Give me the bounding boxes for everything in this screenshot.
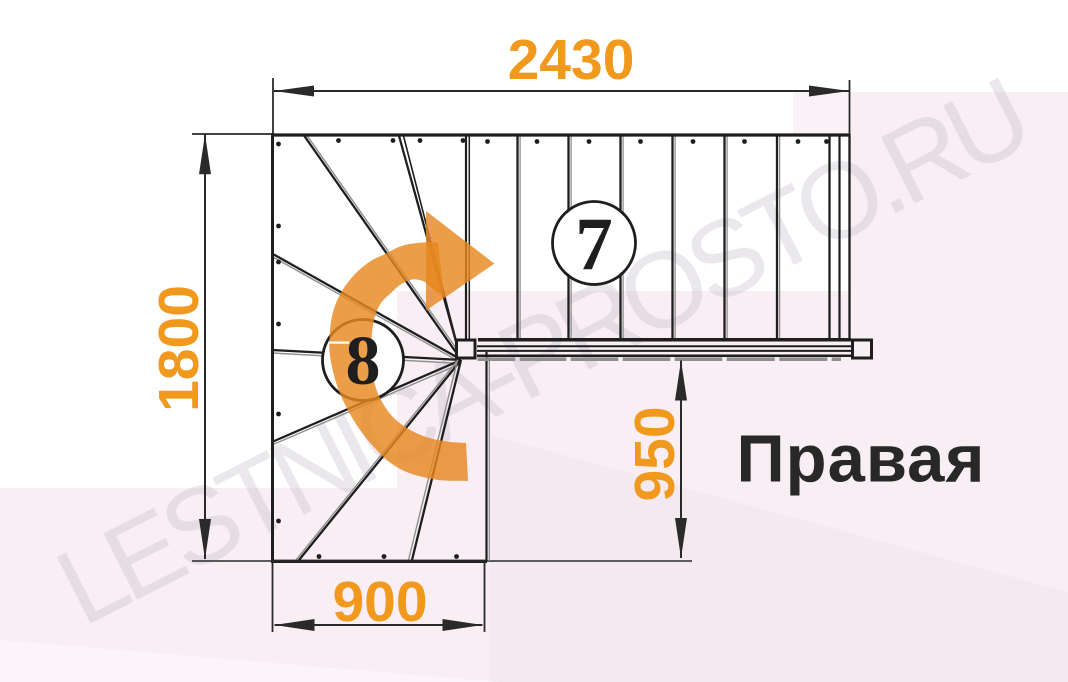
svg-text:900: 900 xyxy=(332,570,427,634)
svg-text:8: 8 xyxy=(346,323,381,400)
svg-text:2430: 2430 xyxy=(508,28,635,92)
svg-text:1800: 1800 xyxy=(147,285,211,412)
svg-text:7: 7 xyxy=(575,203,613,286)
svg-text:Правая: Правая xyxy=(736,422,985,497)
svg-text:950: 950 xyxy=(623,406,687,501)
